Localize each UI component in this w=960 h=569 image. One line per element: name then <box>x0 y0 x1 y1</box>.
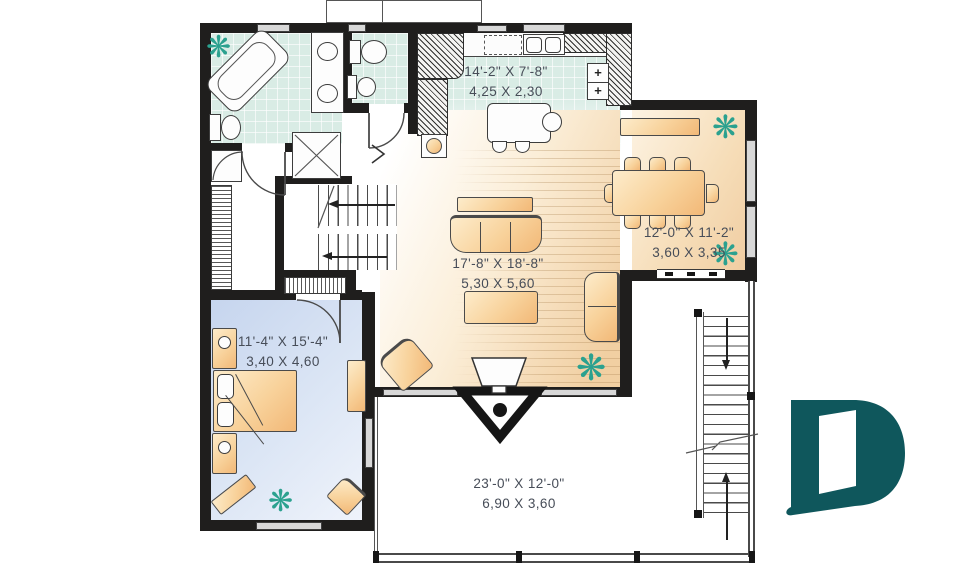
deck-dim-imperial: 23'-0" X 12'-0" <box>428 474 610 494</box>
dining-dim-metric: 3,60 X 3,35 <box>598 243 780 263</box>
bedroom-dimensions: 11'-4" X 15'-4" 3,40 X 4,60 <box>192 332 374 372</box>
kitchen-dim-imperial: 14'-2" X 7'-8" <box>415 62 597 82</box>
bedroom-dim-imperial: 11'-4" X 15'-4" <box>192 332 374 352</box>
brand-watermark-d-logo <box>783 394 911 518</box>
kitchen-dim-metric: 4,25 X 2,30 <box>415 82 597 102</box>
dining-dimensions: 12'-0" X 11'-2" 3,60 X 3,35 <box>598 223 780 263</box>
living-dimensions: 17'-8" X 18'-8" 5,30 X 5,60 <box>407 254 589 294</box>
living-dim-metric: 5,30 X 5,60 <box>407 274 589 294</box>
bedroom-dim-metric: 3,40 X 4,60 <box>192 352 374 372</box>
dining-dim-imperial: 12'-0" X 11'-2" <box>598 223 780 243</box>
deck-dim-metric: 6,90 X 3,60 <box>428 494 610 514</box>
living-dim-imperial: 17'-8" X 18'-8" <box>407 254 589 274</box>
deck-dimensions: 23'-0" X 12'-0" 6,90 X 3,60 <box>428 474 610 514</box>
floor-plan: + + ❋ ❋ ❋ ❋ ❋ <box>0 0 960 569</box>
kitchen-dimensions: 14'-2" X 7'-8" 4,25 X 2,30 <box>415 62 597 102</box>
